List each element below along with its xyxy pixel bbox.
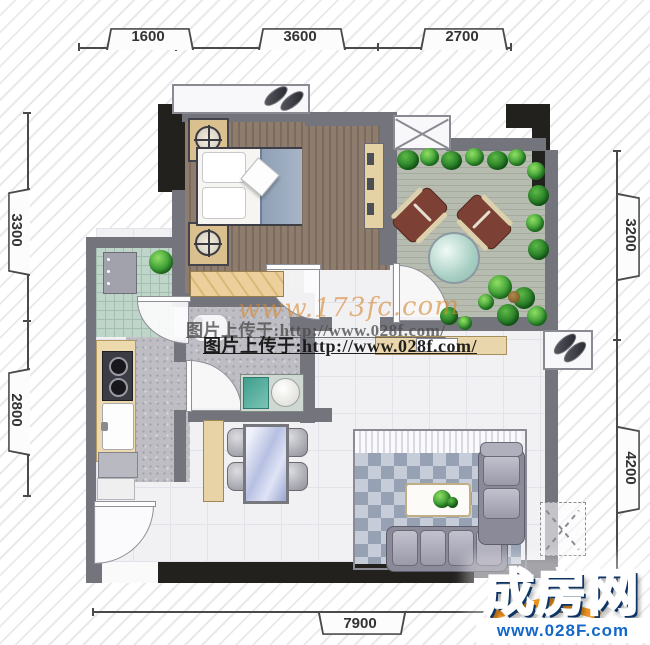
faucet-icon (101, 422, 108, 431)
fridge-dot (107, 270, 110, 273)
terrace-pot-icon (508, 291, 520, 303)
vanity-counter (243, 377, 269, 409)
wall-terrace-top (446, 138, 546, 151)
bathroom-door-leaf (186, 360, 192, 412)
entry-door-gap (102, 562, 158, 583)
lounge-cushion (413, 203, 432, 222)
terrace-plant-icon (527, 162, 545, 180)
kitchen-sink-icon (102, 403, 134, 450)
terrace-plant-icon (487, 151, 508, 170)
wardrobe-slot (367, 153, 374, 165)
fridge-icon (103, 252, 137, 294)
wardrobe-slot (367, 203, 374, 215)
dim-tick (613, 150, 621, 152)
bedroom-door-leaf (266, 264, 321, 270)
kitchen-door-leaf (137, 296, 191, 302)
dim-label-left-2: 2800 (4, 366, 28, 454)
terrace-plant-icon (478, 294, 494, 310)
sofa-armrest (480, 442, 523, 457)
dim-label-left-1: 3300 (4, 186, 28, 274)
burner-icon (109, 378, 128, 397)
pillow (202, 187, 246, 219)
wall-entry-corner (86, 562, 102, 583)
dim-tick (377, 43, 379, 51)
stove-icon (102, 351, 133, 401)
site-logo: 成房网 www.028F.com (458, 550, 650, 645)
dim-label-right-1: 3200 (618, 191, 642, 279)
nightstand (188, 222, 229, 266)
ac-platform (540, 502, 586, 556)
flue-box (393, 115, 451, 150)
bath-vanity (240, 374, 304, 412)
dim-tick (613, 339, 621, 341)
dim-tick (23, 495, 31, 497)
wardrobe-slot (367, 178, 374, 190)
dim-label-right-2: 4200 (618, 424, 642, 512)
terrace-plant-icon (441, 151, 462, 170)
table-plant-icon (447, 497, 458, 508)
terrace-plant-icon (397, 150, 419, 170)
dim-label-top-3: 2700 (418, 25, 506, 49)
sofa-cushion (420, 530, 446, 566)
wall-kitchen-divider-b (174, 410, 186, 482)
dim-label-top-1: 1600 (104, 25, 192, 49)
lamp-icon (195, 230, 221, 256)
burner-icon (109, 357, 128, 376)
wardrobe (364, 143, 384, 229)
wall-bedroom-left (172, 190, 185, 306)
kitchen-low-cabinet (98, 452, 138, 478)
dim-label-top-2: 3600 (256, 25, 344, 49)
terrace-plant-icon (528, 185, 549, 206)
sofa-cushion (483, 455, 520, 486)
sofa-right (478, 449, 525, 545)
dim-tick (92, 608, 94, 616)
dim-tick (23, 320, 31, 322)
terrace-plant-icon (497, 304, 519, 326)
wall-kitchen-top (86, 237, 182, 248)
living-window (543, 330, 593, 370)
logo-brand-text: 成房网 (484, 553, 640, 625)
dim-label-bottom-1: 7900 (316, 612, 404, 636)
entry-door-leaf (94, 501, 156, 507)
floor-plan-page: { "dimensions": { "top": ["1600", "3600"… (0, 0, 650, 645)
terrace-plant-icon (420, 148, 439, 166)
terrace-plant-icon (528, 239, 549, 260)
bedroom-bench (190, 271, 284, 297)
terrace-plant-icon (508, 149, 526, 166)
terrace-table (428, 232, 480, 284)
dim-tick (78, 43, 80, 51)
logo-url-text: www.028F.com (476, 618, 650, 643)
lounge-cushion (472, 210, 491, 229)
dim-tick (23, 112, 31, 114)
sofa-cushion (483, 488, 520, 519)
wall-terrace-right (545, 150, 558, 332)
terrace-plant-icon (465, 148, 484, 166)
watermark-upload-black: 图片上传于:http://www.028f.com/ (203, 332, 477, 358)
dining-table (243, 424, 289, 504)
dining-cabinet (203, 420, 224, 502)
terrace-plant-icon (526, 214, 544, 232)
bay-window-bedroom (172, 84, 310, 114)
fridge-dot (107, 282, 110, 285)
wall-bedroom-corner-black (158, 104, 185, 192)
sofa-cushion (392, 530, 418, 566)
bed (196, 147, 302, 226)
kitchen-white-cabinet (97, 478, 135, 500)
terrace-plant-icon (527, 306, 547, 326)
bath-sink-icon (271, 378, 300, 407)
dim-tick (510, 43, 512, 51)
coffee-table (405, 483, 471, 517)
fridge-dot (107, 258, 110, 261)
kitchen-plant-icon (149, 250, 173, 274)
